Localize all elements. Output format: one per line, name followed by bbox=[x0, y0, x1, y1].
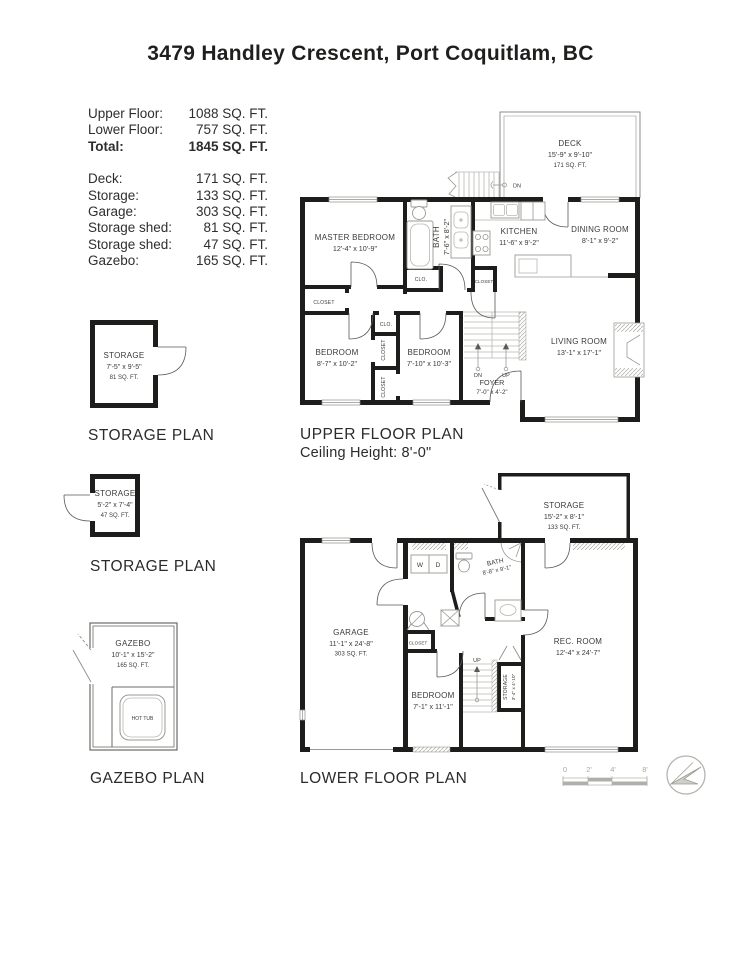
room-dims-storage-small: 3'-4" x 4'-10" bbox=[511, 673, 516, 700]
table-row: Storage shed:81 SQ. FT. bbox=[88, 220, 268, 236]
hot-tub-label: HOT TUB bbox=[132, 716, 154, 722]
closet-label: CLOSET bbox=[381, 376, 387, 397]
stairs-icon: DN UP bbox=[463, 312, 526, 379]
lower-floor-plan-drawing: W D bbox=[293, 470, 648, 765]
row-value: 1088 SQ. FT. bbox=[188, 106, 268, 122]
storage-plan-large-caption: STORAGE PLAN bbox=[88, 427, 214, 445]
bathtub-icon bbox=[407, 221, 433, 269]
dryer-box: D bbox=[429, 555, 447, 573]
room-label-foyer: FOYER bbox=[480, 378, 505, 387]
room-label-living-room: LIVING ROOM bbox=[551, 337, 607, 346]
door-swing bbox=[64, 495, 90, 521]
room-label-storage: STORAGE bbox=[94, 489, 135, 498]
room-label-storage-small: STORAGE bbox=[503, 674, 509, 700]
stairs-up-label: UP bbox=[473, 658, 481, 664]
table-row: Lower Floor:757 SQ. FT. bbox=[88, 122, 268, 138]
room-dims-garage: 11'-1" x 24'-8" bbox=[329, 639, 373, 648]
closet-label: CLOSET bbox=[409, 641, 428, 646]
room-label-bedroom-left: BEDROOM bbox=[315, 348, 358, 357]
room-label-master-bedroom: MASTER BEDROOM bbox=[315, 233, 395, 242]
room-label-dining-room: DINING ROOM bbox=[571, 225, 629, 234]
gazebo-plan-drawing: HOT TUB GAZEBO 10'-1" x 15'-2" 165 SQ. F… bbox=[58, 612, 188, 762]
room-dims-bedroom-right: 7'-10" x 10'-3" bbox=[407, 359, 452, 368]
brand-logo-icon bbox=[667, 756, 705, 794]
room-dims-bath: 7'-6" x 8'-2" bbox=[442, 218, 451, 255]
kitchen-counter bbox=[475, 202, 545, 220]
row-value: 757 SQ. FT. bbox=[196, 122, 268, 138]
row-value: 81 SQ. FT. bbox=[203, 220, 268, 236]
room-dims-foyer: 7'-0" x 4'-2" bbox=[476, 389, 507, 396]
washer-label: W bbox=[417, 562, 424, 569]
row-label: Lower Floor: bbox=[88, 122, 163, 138]
room-dims-storage: 15'-2" x 8'-1" bbox=[544, 512, 585, 521]
row-value: 165 SQ. FT. bbox=[196, 253, 268, 269]
storage-plan-small-caption: STORAGE PLAN bbox=[90, 558, 216, 576]
room-label-bedroom-right: BEDROOM bbox=[407, 348, 450, 357]
table-row: Garage:303 SQ. FT. bbox=[88, 204, 268, 220]
row-label: Storage: bbox=[88, 188, 139, 204]
floorplan-page: 3479 Handley Crescent, Port Coquitlam, B… bbox=[0, 0, 741, 960]
scale-bar: 0 2' 4' 8' bbox=[563, 765, 648, 786]
room-dims-kitchen: 11'-6" x 9'-2" bbox=[499, 238, 539, 247]
closet-label: CLOSET bbox=[381, 339, 387, 360]
row-label: Garage: bbox=[88, 204, 137, 220]
table-row: Deck:171 SQ. FT. bbox=[88, 171, 268, 187]
room-dims-bedroom: 7'-1" x 11'-1" bbox=[413, 702, 453, 711]
upper-floor-plan-drawing: DN bbox=[293, 96, 648, 436]
stairs-icon: UP bbox=[463, 658, 497, 712]
table-row: Storage:133 SQ. FT. bbox=[88, 188, 268, 204]
clo-label: CLO. bbox=[380, 322, 392, 328]
room-area-storage: 81 SQ. FT. bbox=[110, 375, 139, 381]
area-summary-table: Upper Floor:1088 SQ. FT. Lower Floor:757… bbox=[88, 106, 268, 270]
closet-label: CLOSET bbox=[313, 300, 334, 306]
dryer-label: D bbox=[436, 562, 441, 569]
scale-tick-8: 8' bbox=[642, 765, 648, 774]
room-dims-dining-room: 8'-1" x 9'-2" bbox=[582, 236, 619, 245]
gazebo-plan-caption: GAZEBO PLAN bbox=[90, 770, 205, 788]
room-area-storage: 47 SQ. FT. bbox=[101, 513, 130, 519]
row-label: Storage shed: bbox=[88, 237, 172, 253]
row-label: Gazebo: bbox=[88, 253, 139, 269]
row-label: Storage shed: bbox=[88, 220, 172, 236]
room-label-garage: GARAGE bbox=[333, 628, 369, 637]
room-label-bath: BATH bbox=[432, 226, 441, 248]
storage-shed-small-drawing: STORAGE 5'-2" x 7'-4" 47 SQ. FT. bbox=[58, 470, 168, 560]
scale-tick-4: 4' bbox=[610, 765, 616, 774]
vanity-sink-icon bbox=[451, 206, 471, 258]
row-value: 303 SQ. FT. bbox=[196, 204, 268, 220]
table-row: Storage shed:47 SQ. FT. bbox=[88, 237, 268, 253]
fireplace-icon bbox=[614, 323, 644, 377]
scale-tick-2: 2' bbox=[586, 765, 592, 774]
ceiling-height-note: Ceiling Height: 8'-0" bbox=[300, 445, 431, 461]
door-swings bbox=[372, 543, 570, 677]
room-area-garage: 303 SQ. FT. bbox=[334, 651, 367, 658]
room-label-rec-room: REC. ROOM bbox=[554, 637, 603, 646]
toilet-icon bbox=[456, 553, 472, 572]
room-label-kitchen: KITCHEN bbox=[501, 227, 538, 236]
corner-shower-icon bbox=[501, 543, 521, 562]
room-dims-rec-room: 12'-4" x 24'-7" bbox=[556, 648, 601, 657]
scale-bar-and-logo: 0 2' 4' 8' bbox=[555, 755, 715, 800]
room-label-bedroom: BEDROOM bbox=[411, 691, 454, 700]
room-area-gazebo: 165 SQ. FT. bbox=[117, 663, 149, 669]
room-dims-bedroom-left: 8'-7" x 10'-2" bbox=[317, 359, 358, 368]
toilet-icon bbox=[411, 200, 427, 220]
water-heater-icon bbox=[410, 612, 425, 627]
lower-floor-caption: LOWER FLOOR PLAN bbox=[300, 770, 467, 788]
room-dims-deck: 15'-9" x 9'-10" bbox=[548, 150, 593, 159]
table-row-total: Total:1845 SQ. FT. bbox=[88, 139, 268, 155]
room-area-deck: 171 SQ. FT. bbox=[553, 162, 586, 169]
storage-shed-large-drawing: STORAGE 7'-5" x 9'-5" 81 SQ. FT. bbox=[85, 315, 200, 415]
deck-stairs-icon: DN bbox=[448, 172, 521, 197]
room-label-bath-group: BATH 8'-8" x 9'-1" bbox=[480, 556, 512, 577]
row-label: Total: bbox=[88, 139, 124, 155]
table-gap bbox=[88, 155, 268, 171]
room-label-gazebo: GAZEBO bbox=[115, 639, 150, 648]
scale-tick-0: 0 bbox=[563, 765, 567, 774]
row-value: 47 SQ. FT. bbox=[203, 237, 268, 253]
page-title: 3479 Handley Crescent, Port Coquitlam, B… bbox=[0, 42, 741, 66]
deck-stairs-dn-label: DN bbox=[513, 184, 521, 190]
clo-label: CLO. bbox=[415, 277, 427, 283]
row-value: 133 SQ. FT. bbox=[196, 188, 268, 204]
kitchen-peninsula bbox=[515, 255, 608, 277]
row-value: 1845 SQ. FT. bbox=[188, 139, 268, 155]
table-row: Gazebo:165 SQ. FT. bbox=[88, 253, 268, 269]
door-swing bbox=[158, 347, 186, 375]
table-row: Upper Floor:1088 SQ. FT. bbox=[88, 106, 268, 122]
room-dims-gazebo: 10'-1" x 15'-2" bbox=[111, 652, 155, 659]
washer-box: W bbox=[411, 555, 429, 573]
room-dims-storage: 7'-5" x 9'-5" bbox=[106, 364, 142, 371]
room-area-storage: 133 SQ. FT. bbox=[547, 524, 580, 531]
closet-label: CLOSET bbox=[475, 279, 494, 284]
furnace-icon bbox=[441, 610, 459, 626]
row-label: Deck: bbox=[88, 171, 123, 187]
room-label-storage: STORAGE bbox=[103, 351, 144, 360]
bathroom-sink-icon bbox=[495, 600, 521, 621]
upper-floor-caption: UPPER FLOOR PLAN bbox=[300, 426, 464, 444]
room-label-deck: DECK bbox=[558, 139, 582, 148]
row-value: 171 SQ. FT. bbox=[196, 171, 268, 187]
stove-icon bbox=[473, 231, 490, 255]
row-label: Upper Floor: bbox=[88, 106, 163, 122]
room-label-storage: STORAGE bbox=[544, 501, 585, 510]
room-dims-living-room: 13'-1" x 17'-1" bbox=[557, 348, 602, 357]
room-dims-storage: 5'-2" x 7'-4" bbox=[97, 502, 133, 509]
hot-tub-icon: HOT TUB bbox=[120, 695, 165, 740]
room-dims-master-bedroom: 12'-4" x 10'-9" bbox=[333, 244, 378, 253]
